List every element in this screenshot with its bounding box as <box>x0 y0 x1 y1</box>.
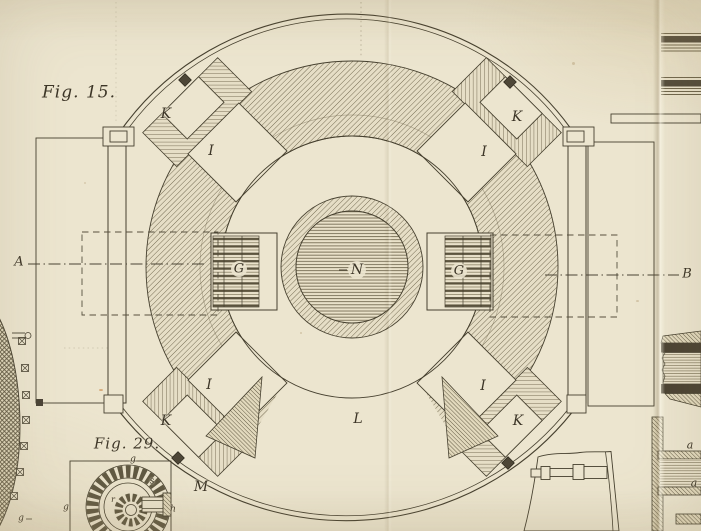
fig29-inset <box>70 461 171 531</box>
top-right-fragment <box>661 34 701 95</box>
right-shaft-fragment-upper <box>661 331 701 407</box>
left-standard <box>36 127 134 413</box>
engraving-plate-fig15: Fig. 15. Fig. 29. KIKIGNGIKIKLMABaagsghr… <box>0 0 701 531</box>
right-bracket-fragment-lower <box>652 417 701 531</box>
bottom-belt-fragment <box>524 452 619 531</box>
left-wheel-fragment <box>0 312 32 529</box>
fig15-drawing <box>0 0 701 531</box>
top-right-rail <box>611 114 701 123</box>
right-standard <box>563 127 654 413</box>
